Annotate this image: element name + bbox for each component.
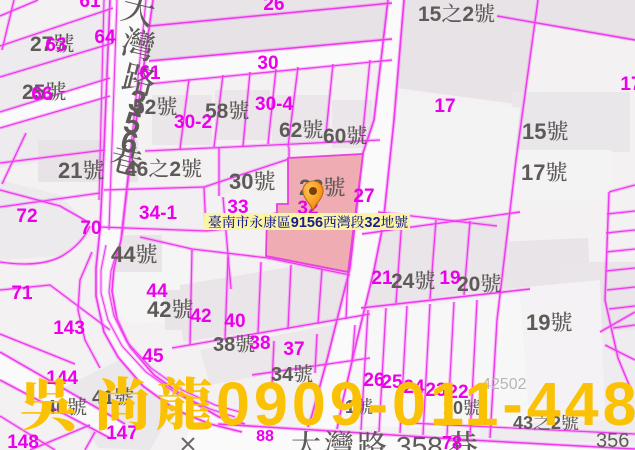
svg-text:17: 17 <box>521 160 545 185</box>
svg-text:30: 30 <box>257 53 278 74</box>
svg-text:37: 37 <box>283 339 304 360</box>
svg-text:61: 61 <box>79 0 101 12</box>
svg-text:30: 30 <box>229 169 253 194</box>
svg-text:42: 42 <box>190 306 211 327</box>
svg-text:21: 21 <box>58 158 82 183</box>
svg-text:38: 38 <box>249 333 270 354</box>
svg-text:9156: 9156 <box>291 215 323 231</box>
svg-text:62: 62 <box>279 119 302 142</box>
svg-text:34-1: 34-1 <box>139 203 177 224</box>
svg-text:27: 27 <box>353 186 374 207</box>
svg-text:30-4: 30-4 <box>255 94 293 115</box>
svg-text:148: 148 <box>7 432 39 450</box>
svg-text:44: 44 <box>146 281 168 302</box>
svg-text:2: 2 <box>169 158 181 181</box>
svg-text:15: 15 <box>522 119 546 144</box>
svg-text:17: 17 <box>434 96 455 117</box>
svg-text:17: 17 <box>620 74 635 95</box>
svg-text:38: 38 <box>213 334 235 356</box>
svg-text:64: 64 <box>94 27 116 48</box>
svg-text:45: 45 <box>142 346 164 367</box>
svg-text:61: 61 <box>139 63 161 84</box>
svg-text:21: 21 <box>371 268 393 289</box>
svg-text:147: 147 <box>106 423 138 444</box>
svg-text:71: 71 <box>11 283 33 304</box>
svg-text:63: 63 <box>45 35 66 56</box>
svg-text:70: 70 <box>80 218 101 239</box>
svg-text:32: 32 <box>364 215 380 231</box>
svg-text:30-2: 30-2 <box>174 112 212 133</box>
svg-text:19: 19 <box>439 268 460 289</box>
svg-text:26: 26 <box>263 0 284 15</box>
svg-text:0909-011-448: 0909-011-448 <box>216 370 635 438</box>
svg-text:19: 19 <box>526 310 550 335</box>
svg-text:72: 72 <box>16 206 37 227</box>
svg-text:24: 24 <box>391 270 415 293</box>
svg-text:2: 2 <box>462 3 474 26</box>
svg-text:143: 143 <box>53 318 85 339</box>
svg-text:40: 40 <box>224 311 245 332</box>
svg-text:15: 15 <box>418 3 442 26</box>
svg-text:66: 66 <box>31 84 52 105</box>
svg-text:44: 44 <box>111 242 136 267</box>
svg-text:60: 60 <box>323 125 346 148</box>
